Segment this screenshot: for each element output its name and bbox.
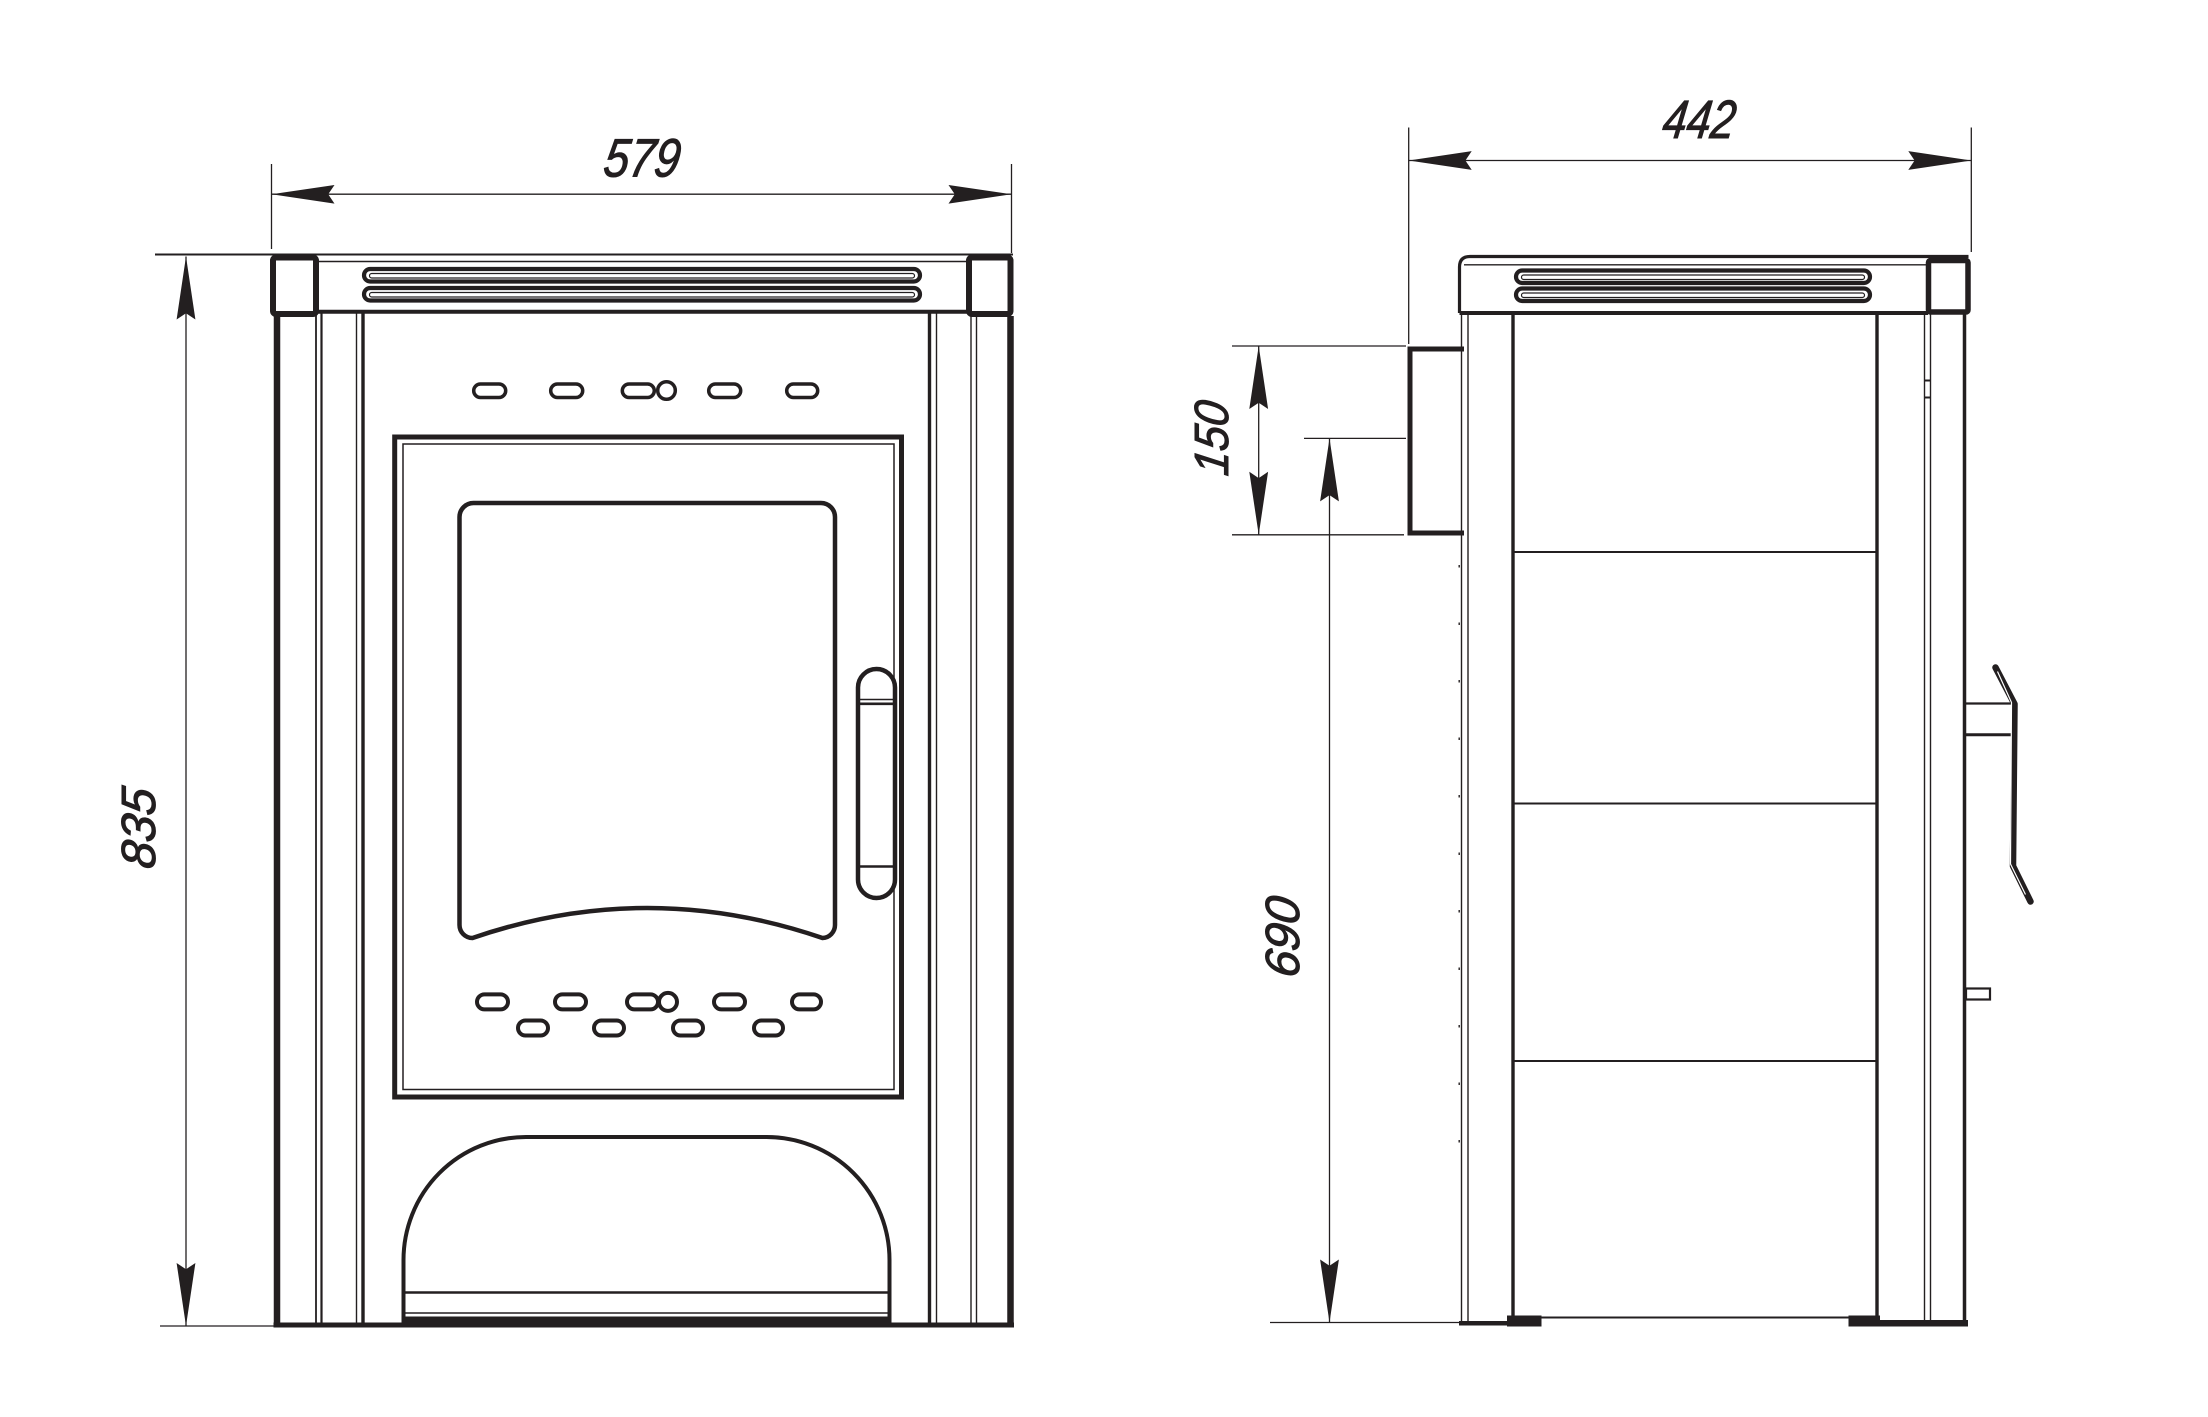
svg-text:579: 579 (600, 128, 684, 188)
svg-text:442: 442 (1659, 90, 1740, 150)
svg-text:150: 150 (1185, 397, 1239, 478)
svg-text:835: 835 (112, 784, 166, 872)
svg-text:690: 690 (1256, 893, 1310, 981)
